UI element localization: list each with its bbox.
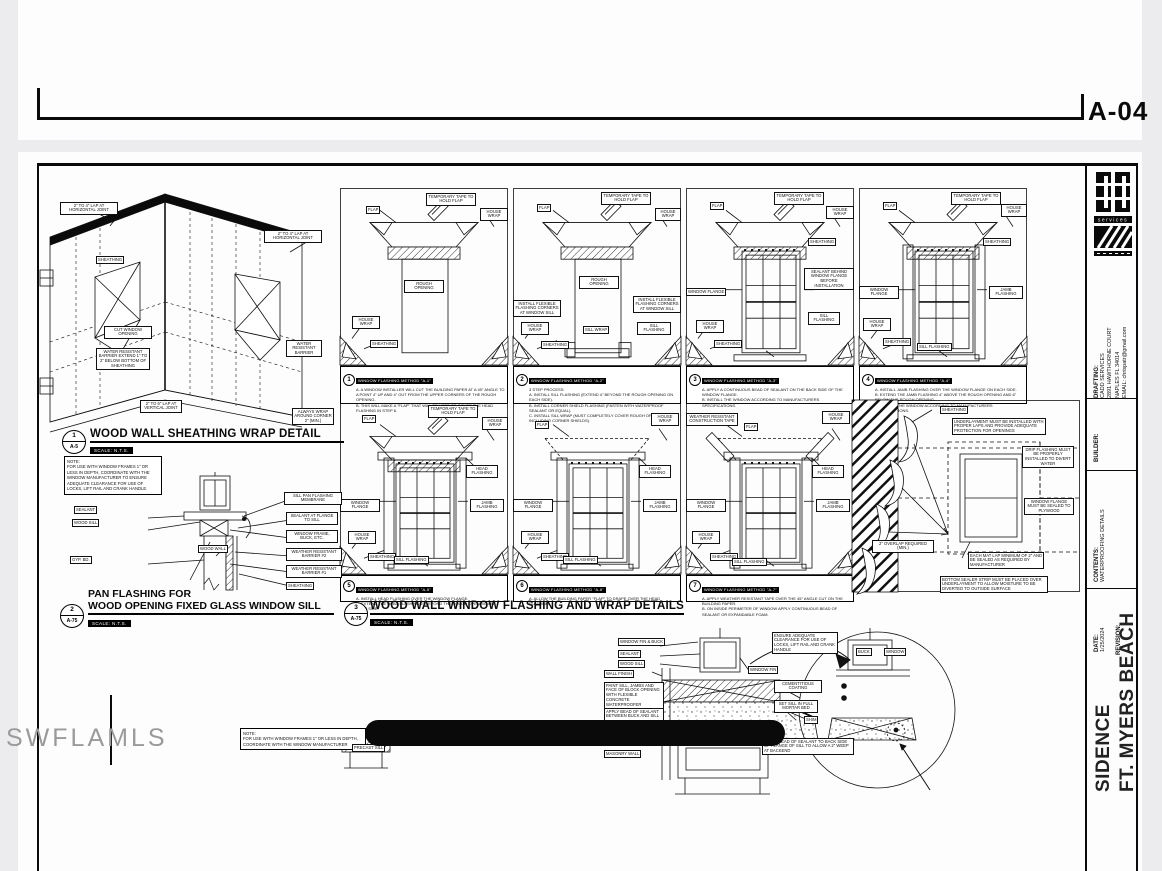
pan-label-wrb2: WEATHER RESISTANT BARRIER #2	[286, 548, 342, 561]
panel-header: WINDOW FLASHING METHOD "A-1"	[356, 378, 433, 384]
label-sill-flashing: SILL FLASHING	[563, 556, 598, 564]
label-sill-flashing: SILL FLASHING	[732, 558, 767, 566]
sill-label-fin-buck: WINDOW FIN & BUCK	[618, 638, 665, 646]
panel-header: WINDOW FLASHING METHOD "A-2"	[529, 378, 606, 384]
pan-label-wood-sill: WOOD SILL	[72, 519, 99, 527]
sill-label-sealant: SEALANT	[618, 650, 641, 658]
label-head-flashing: HEAD FLASHING	[639, 465, 671, 478]
flashing-step-panel-4: 4 WINDOW FLASHING METHOD "A-4" A. INSTAL…	[859, 188, 1027, 400]
label-sheathing: SHEATHING	[983, 238, 1011, 246]
label-flap: FLAP	[883, 202, 897, 210]
label-wr-tape: WEATHER RESISTANT CONSTRUCTION TAPE	[686, 413, 738, 426]
detail3-title: WOOD WALL WINDOW FLASHING AND WRAP DETAI…	[370, 600, 684, 615]
sheet-border-top	[37, 163, 1138, 166]
flashing-step-panel-3: 3 WINDOW FLASHING METHOD "A-3" A. APPLY …	[686, 188, 854, 400]
label-house-wrap: HOUSE WRAP	[826, 206, 854, 219]
flashing-step-panel-1: 1 WINDOW FLASHING METHOD "A-1" A. A WIND…	[340, 188, 508, 400]
project-line-2: FT. MYERS BEACH	[1116, 612, 1140, 792]
label-house-wrap: HOUSE WRAP	[1001, 204, 1027, 217]
logo-services-text: services	[1098, 218, 1128, 224]
drawing-viewer: A-04 services DRAFTING: CADD SERVICES	[0, 0, 1162, 871]
label-temp-tape: TEMPORARY TAPE TO HOLD FLAP	[428, 405, 478, 418]
detail1-number: 1	[63, 431, 85, 441]
flashing-step-panel-6: 6 WINDOW FLASHING METHOD "A-6" A. ALLOW …	[513, 403, 681, 598]
titleblock-line3	[1085, 588, 1138, 589]
label-sill-flashing: SILL FLASHING	[637, 322, 671, 335]
iso-label-lap-horizontal-right: 2" TO 4" LAP AT HORIZONTAL JOINT	[264, 230, 322, 243]
label-sheathing: SHEATHING	[370, 340, 398, 348]
company-logo: services	[1092, 170, 1134, 266]
label-house-wrap: HOUSE WRAP	[863, 318, 891, 331]
contents-value: WATERPROOFING DETAILS	[1100, 470, 1107, 582]
detail2-marker: 2 A-75	[60, 604, 84, 628]
underlayment-detail-panel: SHEATHING UNDERLAYMENT MUST BE INSTALLED…	[852, 400, 1080, 592]
iso-label-wrb-extend: WATER RESISTANT BARRIER EXTEND 1" TO 2" …	[96, 348, 150, 370]
label-sheathing: SHEATHING	[541, 341, 569, 349]
sill-label-wood-sill: WOOD SILL	[618, 660, 645, 668]
iso-sheathing-drawing	[40, 182, 340, 430]
watermark-text: SWFLAMLS	[6, 724, 168, 753]
label-sheathing: SHEATHING	[714, 340, 742, 348]
panel-header: WINDOW FLASHING METHOD "A-7"	[702, 587, 779, 593]
label-sill-wrap: SILL WRAP	[583, 326, 609, 334]
label-window-flange: WINDOW FLANGE	[686, 499, 726, 512]
detail1-scale: SCALE: N.T.S.	[90, 447, 133, 454]
sill-label-paint: PAINT SILL, JAMBS AND FACE OF BLOCK OPEN…	[604, 682, 664, 709]
label-house-wrap: HOUSE WRAP	[482, 417, 508, 430]
label-house-wrap: HOUSE WRAP	[822, 411, 850, 424]
pan-label-gyp-bd: GYP. BD.	[70, 556, 92, 564]
drafting-line-3: EMAIL: chrispatr@gmail.com	[1122, 270, 1129, 398]
titleblock-line2	[1085, 470, 1138, 471]
project-title: SIDENCE FT. MYERS BEACH	[1092, 612, 1140, 792]
label-sheathing: SHEATHING	[368, 553, 396, 561]
iso-label-sheathing: SHEATHING	[96, 256, 124, 264]
step-number: 5	[343, 580, 355, 592]
pan-label-membrane: SILL PAN FLASHING MEMBRANE	[284, 492, 342, 505]
sill-label-masonry: MASONRY WALL	[604, 750, 641, 758]
label-house-wrap: HOUSE WRAP	[696, 320, 724, 333]
label-jamb-flashing: JAMB FLASHING	[643, 499, 677, 512]
label-sheathing: SHEATHING	[883, 338, 911, 346]
label-lap-note: EACH MAT LAP MINIMUM OF 2" AND BE SEALED…	[968, 552, 1044, 569]
sill-label-window: WINDOW	[884, 648, 906, 656]
step-number: 4	[862, 374, 874, 386]
redaction-bar	[365, 720, 785, 746]
label-rough-opening: ROUGH OPENING	[579, 276, 619, 289]
label-flap: FLAP	[710, 202, 724, 210]
panel-notes: A. APPLY WEATHER RESISTANT TAPE OVER THE…	[702, 596, 851, 617]
label-temp-tape: TEMPORARY TAPE TO HOLD FLAP	[426, 193, 476, 206]
label-overlap-note: 2" OVERLAP REQUIRED (MIN.)	[872, 540, 934, 553]
label-flex-corner-right: INSTALL FLEXIBLE FLASHING CORNERS AT WIN…	[633, 296, 681, 313]
detail2-title-line2: WOOD OPENING FIXED GLASS WINDOW SILL	[88, 600, 334, 615]
detail2-ref: A-75	[61, 615, 83, 626]
label-jamb-flashing: JAMB FLASHING	[989, 286, 1023, 299]
builder-label: BUILDER:	[1094, 433, 1100, 462]
drafting-line-1: 2891 HAWTHORNE COURT	[1107, 270, 1114, 398]
label-sill-flashing: SILL FLASHING	[917, 343, 952, 351]
flashing-step-panel-7: 7 WINDOW FLASHING METHOD "A-7" A. APPLY …	[686, 403, 854, 598]
step-number: 3	[689, 374, 701, 386]
flashing-step-panel-2: 2 WINDOW FLASHING METHOD "A-2" 3 STEP PR…	[513, 188, 681, 400]
iso-label-cut-opening: CUT WINDOW OPENING	[104, 326, 152, 339]
step-number: 7	[689, 580, 701, 592]
pan-label-wood-wall-inside: WOOD WALL	[198, 545, 228, 553]
label-rough-opening: ROUGH OPENING	[404, 280, 444, 293]
label-flap: FLAP	[537, 204, 551, 212]
sill-label-bead-buck: APPLY BEAD OF SEALANT BETWEEN BUCK AND S…	[604, 708, 664, 721]
step-number: 1	[343, 374, 355, 386]
detail3-scale: SCALE: N.T.S.	[370, 619, 413, 626]
label-sill-flashing: SILL FLASHING	[394, 556, 429, 564]
prev-sheet-border-v-right	[1081, 94, 1084, 120]
label-bottom-strip-note: BOTTOM SEALER STRIP MUST BE PLACED OVER …	[940, 576, 1048, 593]
label-window-flange: WINDOW FLANGE	[340, 499, 380, 512]
sill-label-window-fin: WINDOW FIN	[748, 666, 778, 674]
pan-detail-note: NOTE: FOR USE WITH WINDOW FRAMES 1" OR L…	[64, 456, 162, 495]
iso-label-corner-wrap: ALWAYS WRAP AROUND CORNER 2" (MIN.)	[292, 408, 334, 425]
label-flap: FLAP	[535, 421, 549, 429]
step-number: 6	[516, 580, 528, 592]
label-sealant-behind: SEALANT BEHIND WINDOW FLANGE BEFORE INST…	[804, 268, 854, 290]
drafting-block: DRAFTING: CADD SERVICES 2891 HAWTHORNE C…	[1094, 270, 1130, 398]
drafting-line-0: CADD SERVICES	[1100, 270, 1107, 398]
pan-label-sheathing: SHEATHING	[286, 582, 314, 590]
label-sill-flashing: SILL FLASHING	[808, 312, 840, 325]
project-line-1: SIDENCE	[1092, 612, 1116, 792]
sill-label-mortar: SET SILL IN FULL MORTAR BED	[774, 700, 818, 713]
sill-label-wall-finish: WALL FINISH	[604, 670, 634, 678]
label-window-flange: WINDOW FLANGE	[513, 499, 553, 512]
label-jamb-flashing: JAMB FLASHING	[470, 499, 504, 512]
prev-sheet-border-h	[37, 117, 1083, 120]
titleblock-line1	[1085, 398, 1138, 399]
label-temp-tape: TEMPORARY TAPE TO HOLD FLAP	[601, 192, 651, 205]
label-temp-tape: TEMPORARY TAPE TO HOLD FLAP	[774, 192, 824, 205]
label-jamb-flashing: JAMB FLASHING	[816, 499, 850, 512]
label-sheathing: SHEATHING	[808, 238, 836, 246]
detail2-title: PAN FLASHING FOR WOOD OPENING FIXED GLAS…	[88, 588, 334, 615]
detail1-marker: 1 A-5	[62, 430, 86, 454]
label-head-flashing: HEAD FLASHING	[812, 465, 844, 478]
drafting-line-2: NAPLES FL 34014	[1115, 270, 1122, 398]
label-flap: FLAP	[362, 415, 376, 423]
panel-header: WINDOW FLASHING METHOD "A-3"	[702, 378, 779, 384]
label-house-wrap: HOUSE WRAP	[348, 531, 376, 544]
label-house-wrap: HOUSE WRAP	[655, 208, 681, 221]
label-head-flashing: HEAD FLASHING	[466, 465, 498, 478]
sill-label-shim: SHIM	[804, 716, 818, 724]
label-window-flange: WINDOW FLANGE	[859, 286, 899, 299]
label-house-wrap: HOUSE WRAP	[692, 531, 720, 544]
pan-label-sealant: SEALANT	[74, 506, 97, 514]
iso-label-lap-vertical: 2" TO 6" LAP AT VERTICAL JOINT	[140, 400, 182, 413]
detail2-number: 2	[61, 605, 83, 615]
detail3-number: 3	[345, 603, 367, 613]
sill-note-box: NOTE: FOR USE WITH WINDOW FRAMES 1" OR L…	[240, 728, 366, 750]
label-drip-flashing-note: DRIP FLASHING MUST BE PROPERLY INSTALLED…	[1022, 446, 1074, 468]
sill-label-buck: BUCK	[856, 648, 872, 656]
prev-sheet-border-v-left	[37, 88, 40, 120]
label-house-wrap: HOUSE WRAP	[480, 208, 508, 221]
iso-label-wrb: WATER RESISTANT BARRIER	[286, 340, 322, 357]
label-house-wrap: HOUSE WRAP	[352, 316, 380, 329]
iso-label-lap-horizontal-left: 2" TO 4" LAP AT HORIZONTAL JOINT	[60, 202, 118, 215]
detail1-title: WOOD WALL SHEATHING WRAP DETAIL	[90, 428, 344, 443]
label-flange-sealed-note: WINDOW FLANGE MUST BE SEALED TO PLYWOOD	[1024, 498, 1074, 515]
detail1-ref: A-5	[63, 441, 85, 452]
detail3-ref: A-75	[345, 613, 367, 624]
prev-sheet-number: A-04	[1088, 96, 1148, 127]
pan-label-sealant-flange: SEALANT AT FLANGE TO SILL	[286, 512, 338, 525]
sill-label-cementitious: CEMENTITIOUS COATING	[774, 680, 822, 693]
sheet-border-left	[37, 163, 39, 871]
step-number: 2	[516, 374, 528, 386]
sill-label-clearance: ENSURE ADEQUATE CLEARANCE FOR USE OF LOC…	[772, 632, 838, 654]
contents-block: CONTENTS: WATERPROOFING DETAILS	[1094, 470, 1107, 582]
detail3-marker: 3 A-75	[344, 602, 368, 626]
label-sheathing: SHEATHING	[940, 406, 968, 414]
label-house-wrap: HOUSE WRAP	[521, 322, 549, 335]
label-underlayment-note: UNDERLAYMENT MUST BE INSTALLED WITH PROP…	[952, 418, 1046, 435]
detail2-scale: SCALE: N.T.S.	[88, 620, 131, 627]
panel-header: WINDOW FLASHING METHOD "A-5"	[356, 587, 433, 593]
label-window-flange: WINDOW FLANGE	[686, 288, 726, 296]
label-flex-corner-left: INSTALL FLEXIBLE FLASHING CORNERS AT WIN…	[513, 300, 561, 317]
titleblock-divider	[1085, 163, 1087, 871]
flashing-step-panel-5: 5 WINDOW FLASHING METHOD "A-5" A. INSTAL…	[340, 403, 508, 598]
label-flap: FLAP	[744, 423, 758, 431]
pan-label-frame-buck: WINDOW FRAME, BUCK, ETC.	[286, 530, 338, 543]
panel-header: WINDOW FLASHING METHOD "A-6"	[529, 587, 606, 593]
label-temp-tape: TEMPORARY TAPE TO HOLD FLAP	[951, 192, 1001, 205]
panel-header: WINDOW FLASHING METHOD "A-4"	[875, 378, 952, 384]
label-house-wrap: HOUSE WRAP	[521, 531, 549, 544]
label-house-wrap: HOUSE WRAP	[651, 413, 679, 426]
pan-label-wrb1: WEATHER RESISTANT BARRIER #1	[286, 565, 342, 578]
label-flap: FLAP	[366, 206, 380, 214]
